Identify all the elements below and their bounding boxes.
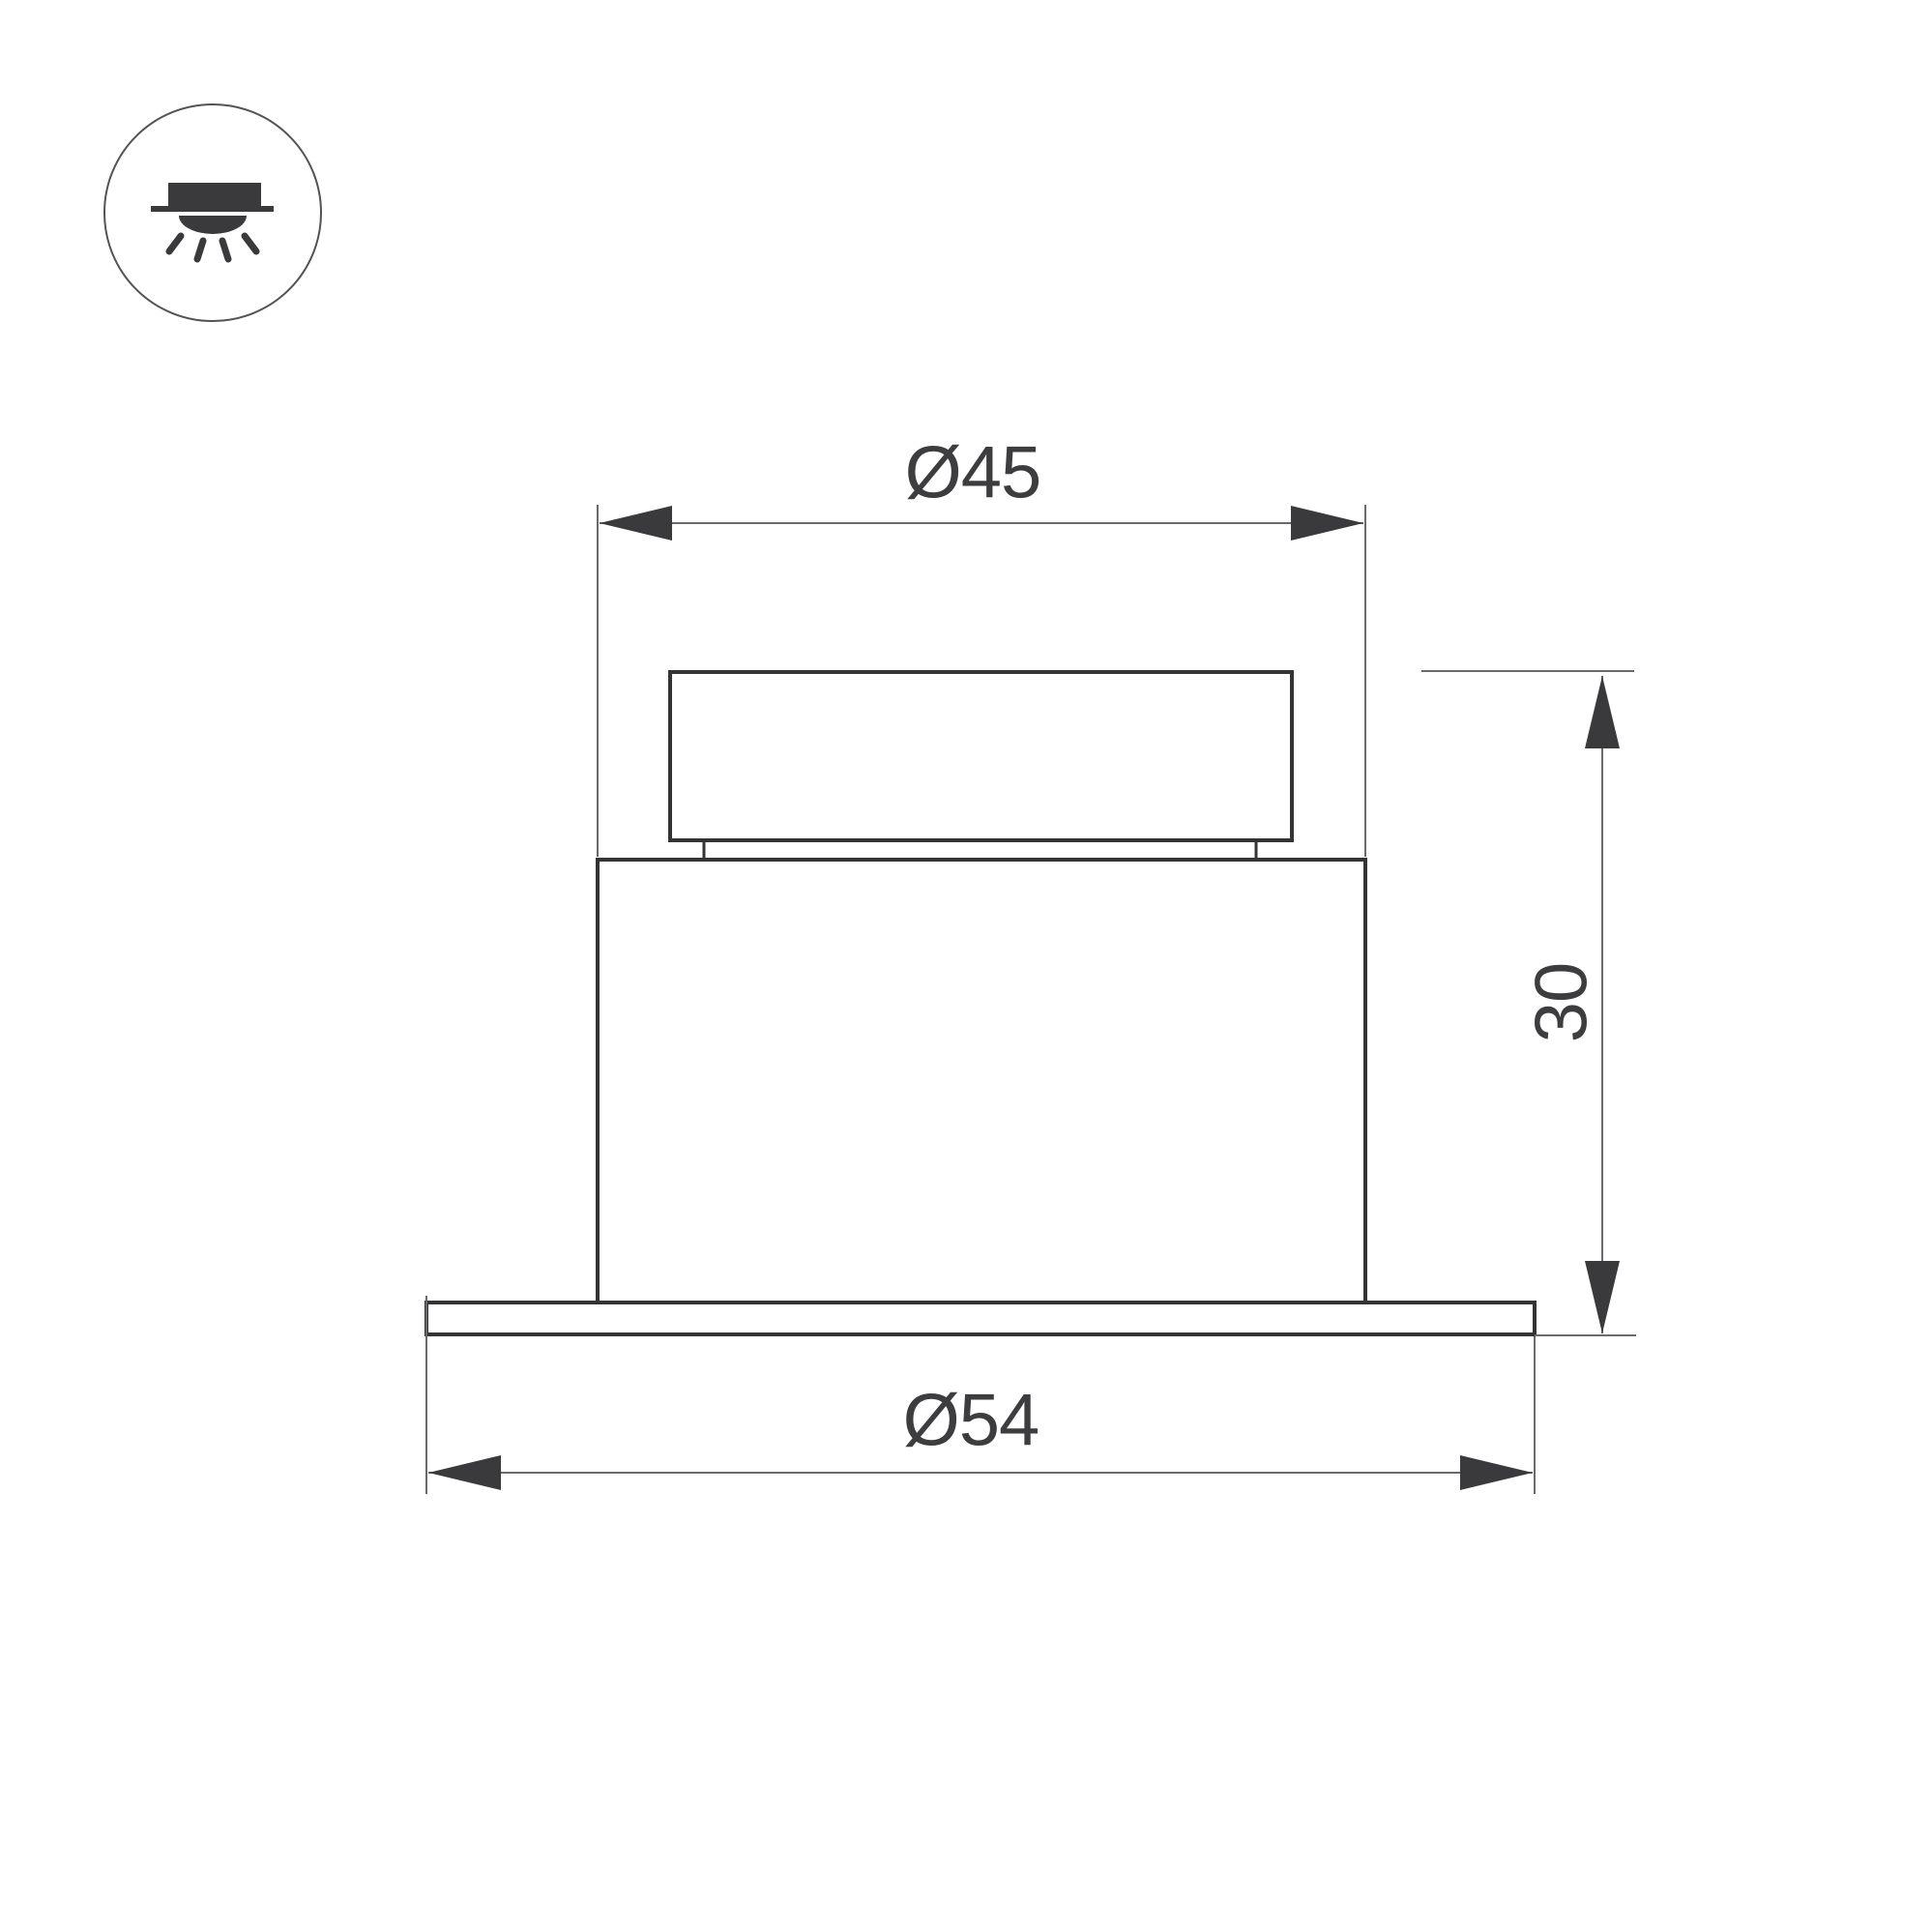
arrowhead-left (600, 506, 672, 541)
fixture-outline (426, 672, 1535, 1334)
recessed-downlight-icon (104, 104, 321, 321)
dimension-height: 30 (1421, 671, 1636, 1335)
dimension-label-flange-diameter: Ø54 (903, 1380, 1039, 1462)
fixture-head-outline (670, 672, 1292, 840)
dimension-label-body-diameter: Ø45 (905, 432, 1041, 514)
icon-lamp-housing-glyph (168, 183, 261, 208)
arrowhead-right (1460, 1455, 1533, 1490)
arrowhead-down (1585, 1261, 1620, 1333)
drawing-svg: Ø45 30 Ø54 (0, 0, 1932, 1932)
arrowhead-up (1585, 676, 1620, 748)
arrowhead-right (1291, 506, 1363, 541)
arrowhead-left (428, 1455, 501, 1490)
dimension-label-height: 30 (1521, 963, 1603, 1043)
fixture-flange-outline (426, 1303, 1535, 1334)
icon-circle (104, 104, 321, 321)
icon-ceiling-line-glyph (151, 206, 274, 212)
dimension-drawing-page: Ø45 30 Ø54 (0, 0, 1932, 1932)
fixture-body-outline (598, 860, 1365, 1303)
